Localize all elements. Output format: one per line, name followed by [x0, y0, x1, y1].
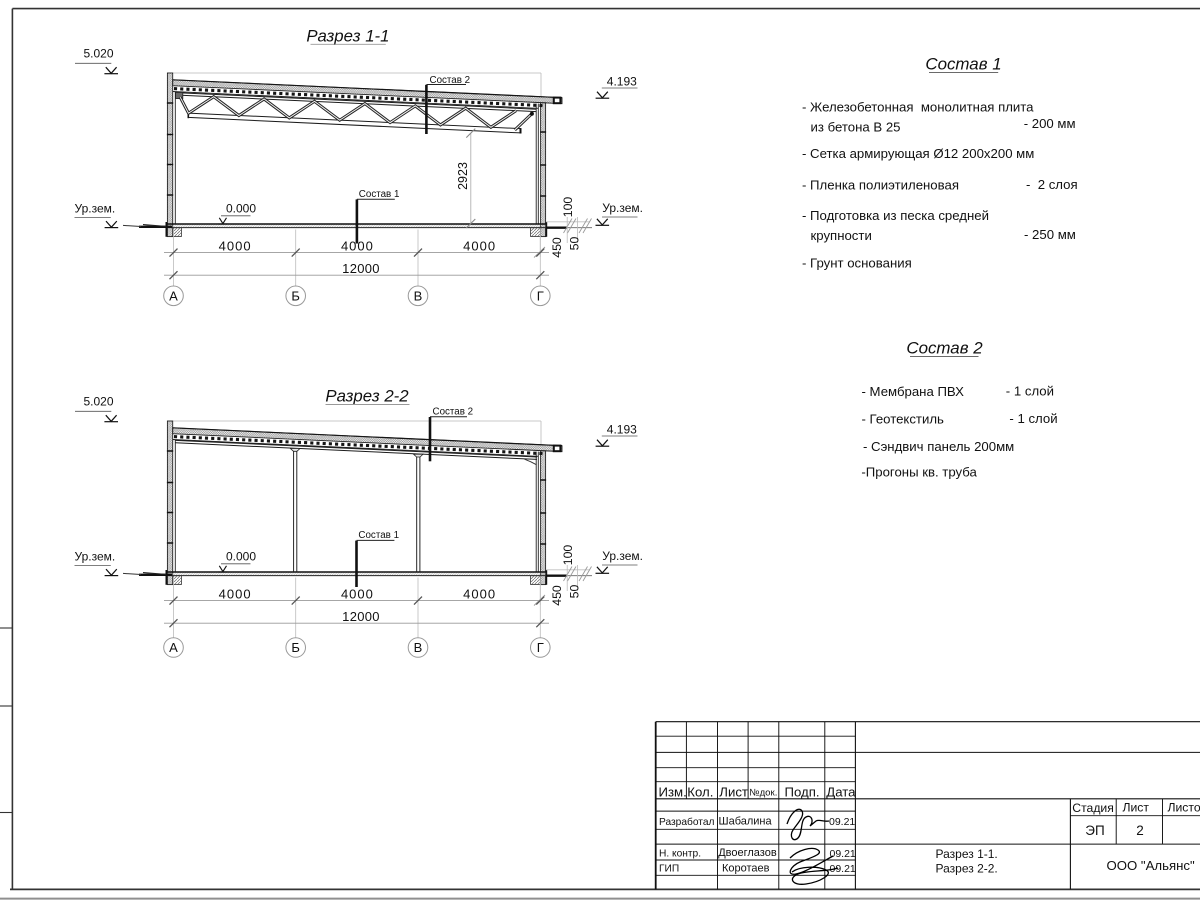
svg-text:- Сэндвич панель 200мм: - Сэндвич панель 200мм [863, 439, 1014, 454]
svg-text:- Подготовка из песка средней: - Подготовка из песка средней [802, 208, 989, 223]
svg-text:4000: 4000 [219, 238, 252, 253]
svg-text:Листов: Листов [1168, 801, 1200, 815]
svg-text:2923: 2923 [456, 162, 470, 190]
svg-text:Лист: Лист [1123, 801, 1150, 815]
svg-text:09.21: 09.21 [830, 848, 856, 860]
svg-text:- 200 мм: - 200 мм [1024, 116, 1076, 131]
svg-text:50: 50 [567, 237, 581, 251]
svg-text:Разрез 1-1: Разрез 1-1 [306, 27, 389, 46]
svg-text:Двоеглазов: Двоеглазов [718, 847, 777, 859]
svg-text:09.21: 09.21 [829, 816, 855, 828]
svg-text:Подп.: Подп. [785, 784, 820, 799]
svg-text:450: 450 [550, 237, 564, 258]
svg-text:Разрез 1-1.: Разрез 1-1. [936, 847, 998, 861]
svg-text:Ур.зем.: Ур.зем. [75, 202, 116, 216]
svg-text:- Сетка армирующая Ø12 200x200: - Сетка армирующая Ø12 200x200 мм [802, 146, 1034, 161]
svg-text:- Грунт основания: - Грунт основания [802, 256, 912, 271]
svg-text:4000: 4000 [463, 586, 496, 601]
svg-text:5.020: 5.020 [84, 395, 114, 409]
svg-text:450: 450 [550, 585, 564, 606]
svg-text:50: 50 [567, 585, 581, 599]
svg-text:Состав 2: Состав 2 [430, 75, 471, 86]
svg-text:Н. контр.: Н. контр. [659, 849, 701, 860]
svg-text:4000: 4000 [341, 586, 374, 601]
svg-text:Кол.: Кол. [687, 784, 713, 799]
svg-text:ООО "Альянс": ООО "Альянс" [1107, 858, 1195, 873]
svg-text:- 1 слой: - 1 слой [1009, 411, 1057, 426]
svg-text:Б: Б [291, 289, 300, 304]
svg-text:Разработал: Разработал [659, 816, 715, 828]
svg-text:- Пленка полиэтиленовая: - Пленка полиэтиленовая [802, 177, 959, 192]
svg-text:Ур.зем.: Ур.зем. [602, 201, 643, 215]
svg-text:Стадия: Стадия [1072, 801, 1114, 815]
svg-text:Ур.зем.: Ур.зем. [75, 550, 116, 564]
svg-text:В: В [414, 640, 423, 655]
svg-text:Шабалина: Шабалина [719, 816, 773, 828]
svg-text:4000: 4000 [463, 238, 496, 253]
svg-text:№док.: №док. [749, 788, 777, 799]
svg-text:Состав 1: Состав 1 [358, 530, 399, 541]
svg-text:крупности: крупности [811, 228, 872, 243]
svg-text:Лист: Лист [719, 784, 748, 799]
svg-text:- Мембрана ПВХ: - Мембрана ПВХ [862, 384, 965, 399]
svg-text:0.000: 0.000 [226, 201, 256, 215]
svg-text:- Железобетонная монолитная п: - Железобетонная монолитная плита [802, 99, 1034, 114]
svg-text:- Геотекстиль: - Геотекстиль [862, 412, 945, 427]
svg-text:Состав 1: Состав 1 [925, 55, 1001, 74]
svg-text:Дата: Дата [826, 784, 856, 799]
svg-text:Изм.: Изм. [659, 784, 687, 799]
svg-text:из бетона В 25: из бетона В 25 [811, 120, 901, 135]
svg-text:Состав 2: Состав 2 [906, 339, 983, 358]
svg-text:Б: Б [291, 640, 300, 655]
svg-text:100: 100 [561, 197, 575, 218]
svg-text:4.193: 4.193 [607, 422, 637, 436]
svg-text:Коротаев: Коротаев [722, 862, 770, 874]
svg-text:2: 2 [1136, 823, 1144, 838]
svg-text:Ур.зем.: Ур.зем. [602, 549, 643, 563]
svg-text:А: А [169, 640, 178, 655]
svg-text:100: 100 [561, 545, 575, 566]
svg-text:Г: Г [537, 640, 544, 655]
svg-text:-Прогоны кв. труба: -Прогоны кв. труба [861, 464, 977, 479]
svg-text:В: В [414, 289, 423, 304]
svg-text:Разрез 2-2.: Разрез 2-2. [936, 861, 998, 875]
svg-text:ЭП: ЭП [1085, 823, 1104, 838]
svg-text:Состав 1: Состав 1 [359, 189, 400, 200]
svg-text:А: А [169, 289, 178, 304]
svg-text:- 1 слой: - 1 слой [1006, 384, 1054, 399]
svg-text:Состав 2: Состав 2 [433, 407, 474, 418]
svg-text:ГИП: ГИП [659, 864, 679, 875]
svg-text:5.020: 5.020 [84, 47, 114, 61]
svg-text:Разрез 2-2: Разрез 2-2 [325, 386, 409, 405]
svg-text:- 2 слоя: - 2 слоя [1026, 177, 1078, 192]
svg-text:12000: 12000 [342, 609, 380, 624]
svg-text:- 250 мм: - 250 мм [1024, 227, 1076, 242]
svg-text:4000: 4000 [219, 586, 252, 601]
svg-text:4.193: 4.193 [607, 74, 637, 88]
svg-text:12000: 12000 [342, 261, 380, 276]
svg-text:Г: Г [537, 289, 544, 304]
svg-text:0.000: 0.000 [226, 549, 256, 563]
